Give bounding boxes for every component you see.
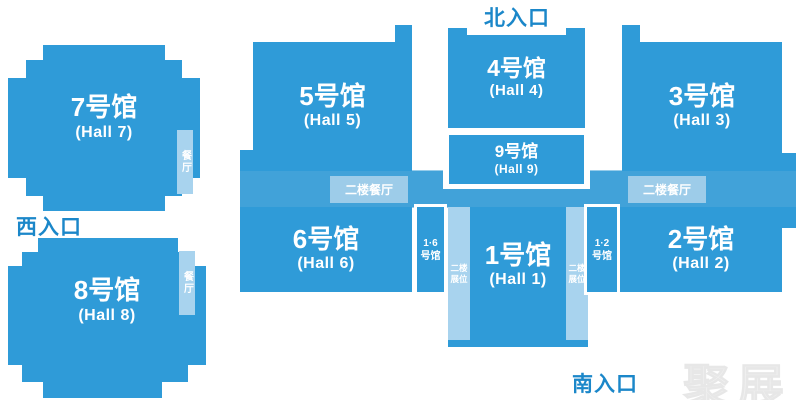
hall-3-name: 3号馆	[669, 82, 735, 111]
second-floor-restaurant-right: 二楼餐厅	[628, 176, 706, 203]
corridor-stub-upper-right	[782, 153, 796, 171]
second-floor-restaurant-left: 二楼餐厅	[330, 176, 408, 203]
hall-8-name: 8号馆	[74, 276, 140, 305]
hall-7: 7号馆 (Hall 7)	[8, 45, 200, 211]
hall-2-en: (Hall 2)	[668, 254, 734, 274]
connector-1-6-line1: 1·6	[423, 237, 437, 250]
hall-8: 8号馆 (Hall 8)	[8, 238, 206, 398]
entrance-label-south: 南入口	[572, 368, 638, 398]
hall-1-booth-strip-left: 二楼 展位	[448, 207, 470, 340]
connector-1-2-line2: 号馆	[592, 250, 612, 263]
floor-plan-map: 北入口 7号馆 (Hall 7) 餐厅 西入口 8号馆 (Hall 8) 餐厅 …	[0, 0, 800, 400]
hall-4-entrance-notch	[467, 28, 566, 35]
hall-6-en: (Hall 6)	[293, 254, 359, 274]
hall-1: 二楼 展位 二楼 展位 1号馆 (Hall 1)	[448, 207, 588, 347]
hall-5-name: 5号馆	[299, 82, 365, 111]
booth-label-line1: 二楼	[568, 263, 585, 274]
second-floor-restaurant-label: 二楼餐厅	[643, 181, 691, 198]
hall-6-name: 6号馆	[293, 225, 359, 254]
hall-4-en: (Hall 4)	[487, 82, 546, 101]
hall-8-en: (Hall 8)	[74, 306, 140, 326]
connector-hall-1-2: 1·2 号馆	[587, 207, 617, 292]
hall-6: 6号馆 (Hall 6)	[240, 207, 412, 292]
connector-1-6-line2: 号馆	[421, 250, 441, 263]
hall-1-name: 1号馆	[470, 241, 566, 270]
hall-8-restaurant-strip: 餐厅	[179, 251, 195, 315]
watermark-logo: 聚展	[683, 348, 791, 400]
hall-7-name: 7号馆	[71, 93, 137, 122]
restaurant-label: 餐厅	[180, 271, 195, 295]
corridor-stub-lower-right	[782, 207, 796, 228]
hall-3-en: (Hall 3)	[669, 111, 735, 131]
hall-2: 2号馆 (Hall 2)	[620, 207, 782, 292]
hall-5-left-step	[240, 150, 254, 171]
hall-4: 4号馆 (Hall 4)	[448, 28, 585, 128]
hall-3: 3号馆 (Hall 3)	[622, 42, 782, 171]
hall-2-name: 2号馆	[668, 225, 734, 254]
restaurant-label: 餐厅	[178, 150, 193, 174]
hall-5-en: (Hall 5)	[299, 111, 365, 131]
booth-label-line1: 二楼	[450, 263, 467, 274]
connector-hall-1-2-frame: 1·2 号馆	[584, 204, 620, 295]
hall-1-en: (Hall 1)	[470, 270, 566, 290]
second-floor-restaurant-label: 二楼餐厅	[345, 181, 393, 198]
hall-7-en: (Hall 7)	[71, 123, 137, 143]
hall-5: 5号馆 (Hall 5)	[253, 42, 412, 171]
hall-9-frame: 9号馆 (Hall 9)	[443, 130, 590, 189]
entrance-label-west: 西入口	[16, 211, 82, 241]
booth-label-line2: 展位	[450, 274, 467, 285]
connector-hall-1-6: 1·6 号馆	[417, 207, 444, 292]
hall-7-restaurant-strip: 餐厅	[177, 130, 193, 194]
booth-label-line2: 展位	[568, 274, 585, 285]
hall-9-name: 9号馆	[494, 142, 538, 161]
hall-4-name: 4号馆	[487, 56, 546, 82]
connector-hall-1-6-frame: 1·6 号馆	[414, 204, 447, 295]
connector-1-2-line1: 1·2	[595, 237, 609, 250]
hall-9: 9号馆 (Hall 9)	[449, 135, 584, 184]
hall-9-en: (Hall 9)	[494, 162, 538, 177]
